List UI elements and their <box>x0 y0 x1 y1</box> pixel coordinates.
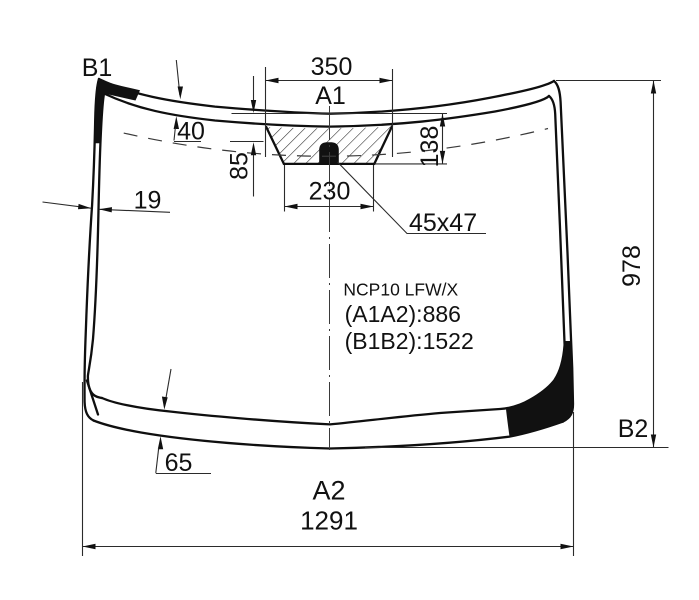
svg-text:NCP10 LFW/X: NCP10 LFW/X <box>343 280 458 300</box>
svg-text:40: 40 <box>177 118 205 146</box>
svg-text:45x47: 45x47 <box>409 209 477 237</box>
svg-text:B1: B1 <box>82 54 113 82</box>
svg-text:(B1B2):1522: (B1B2):1522 <box>345 328 474 354</box>
svg-text:978: 978 <box>618 245 646 287</box>
svg-text:(A1A2):886: (A1A2):886 <box>345 301 461 327</box>
svg-text:65: 65 <box>165 449 193 477</box>
svg-text:A2: A2 <box>312 476 345 506</box>
svg-text:19: 19 <box>134 187 162 215</box>
svg-text:B2: B2 <box>618 415 649 443</box>
svg-text:1291: 1291 <box>300 506 358 536</box>
svg-text:A1: A1 <box>315 82 346 110</box>
svg-text:350: 350 <box>311 53 353 81</box>
svg-text:230: 230 <box>309 178 351 206</box>
svg-text:138: 138 <box>416 126 444 168</box>
svg-text:85: 85 <box>226 152 254 180</box>
